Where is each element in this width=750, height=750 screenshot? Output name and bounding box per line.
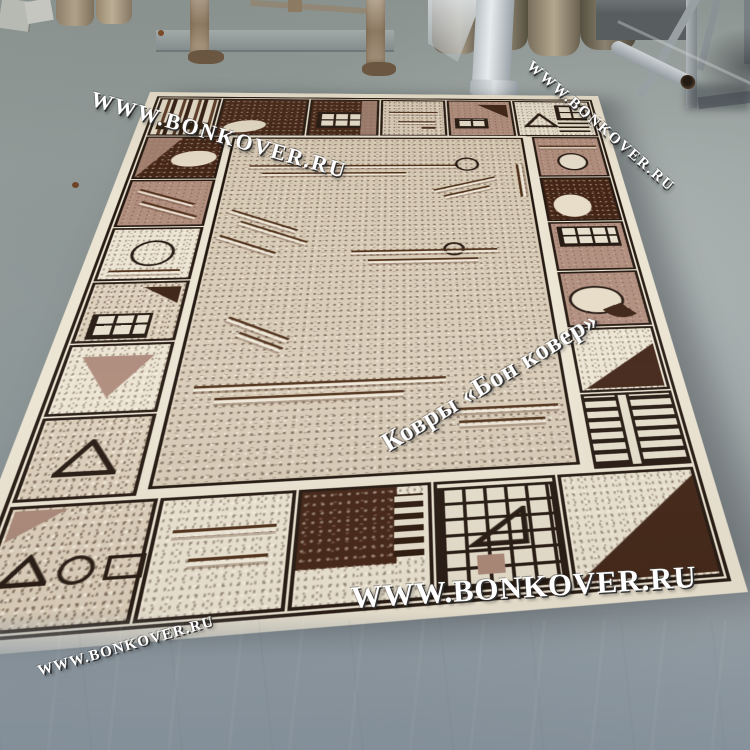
field-line xyxy=(351,248,497,252)
triangle-outline-icon xyxy=(51,438,126,478)
thin-line xyxy=(172,524,276,534)
cream-circle xyxy=(552,194,595,217)
dark-rect xyxy=(295,487,397,571)
field-line xyxy=(459,416,546,423)
metal-pipe-column xyxy=(472,0,515,92)
border-block-circle-outline xyxy=(93,227,203,281)
thin-line xyxy=(398,121,435,122)
triangle-outline-icon xyxy=(0,553,55,591)
dark-triangle xyxy=(477,105,508,118)
trestle-leg xyxy=(366,0,385,70)
rust-spot xyxy=(158,30,164,36)
mauve-triangle xyxy=(4,509,69,544)
lattice-motif xyxy=(455,118,489,128)
trestle-stub xyxy=(288,0,302,12)
triangle-outline-icon xyxy=(522,113,559,127)
trestle-foot xyxy=(188,50,224,64)
thin-line xyxy=(108,269,180,272)
lattice-motif xyxy=(556,226,622,247)
dark-triangle xyxy=(139,286,181,304)
thin-line xyxy=(539,146,597,147)
rust-spot xyxy=(72,182,79,188)
carpet-roll xyxy=(96,0,132,24)
border-block-mauve-lines xyxy=(113,180,215,228)
rack-shadow xyxy=(686,84,750,110)
comb-teeth xyxy=(394,493,424,557)
thin-line xyxy=(188,553,268,562)
thin-line xyxy=(389,112,438,113)
field-diag-line xyxy=(433,176,495,190)
field-line xyxy=(214,390,404,401)
border-block-mauve-triangle xyxy=(447,100,517,136)
fallen-pipe xyxy=(609,39,698,92)
mauve-triangle xyxy=(68,355,155,400)
dark-dash xyxy=(421,127,435,129)
border-block-lattice-right xyxy=(548,221,637,271)
border-block-lattice xyxy=(306,99,380,136)
trestle-foot xyxy=(362,62,396,76)
circle-outline xyxy=(126,240,178,267)
field-vertical-line xyxy=(516,164,524,196)
triangle-outline-icon xyxy=(467,505,533,547)
carpet-roll xyxy=(56,0,94,26)
border-block-lines-bottom xyxy=(132,490,296,623)
border-block-circle-right xyxy=(532,137,610,177)
square-outline xyxy=(102,553,147,580)
rolled-carpet-end xyxy=(24,0,53,24)
circle-outline xyxy=(53,554,98,586)
circle-outline xyxy=(555,153,590,170)
field-line xyxy=(194,376,446,389)
field-circle-outline xyxy=(455,158,480,171)
field-line xyxy=(368,257,479,261)
border-block-lines xyxy=(380,100,448,136)
maze-channel xyxy=(614,395,645,465)
border-block-dark-circle xyxy=(539,177,622,221)
mauve-strip xyxy=(360,101,377,135)
cream-ellipse xyxy=(171,149,218,168)
field-diag-line xyxy=(228,316,290,340)
rug-product-photo: WWW.BONKOVER.RU WWW.BONKOVER.RU Ковры «Б… xyxy=(0,0,750,750)
carpet-roll xyxy=(528,0,580,56)
dark-triangle xyxy=(578,343,665,389)
trestle-brace xyxy=(250,0,370,14)
lattice-motif xyxy=(316,112,363,128)
field-diag-line xyxy=(219,235,276,254)
lattice-motif xyxy=(84,313,153,340)
